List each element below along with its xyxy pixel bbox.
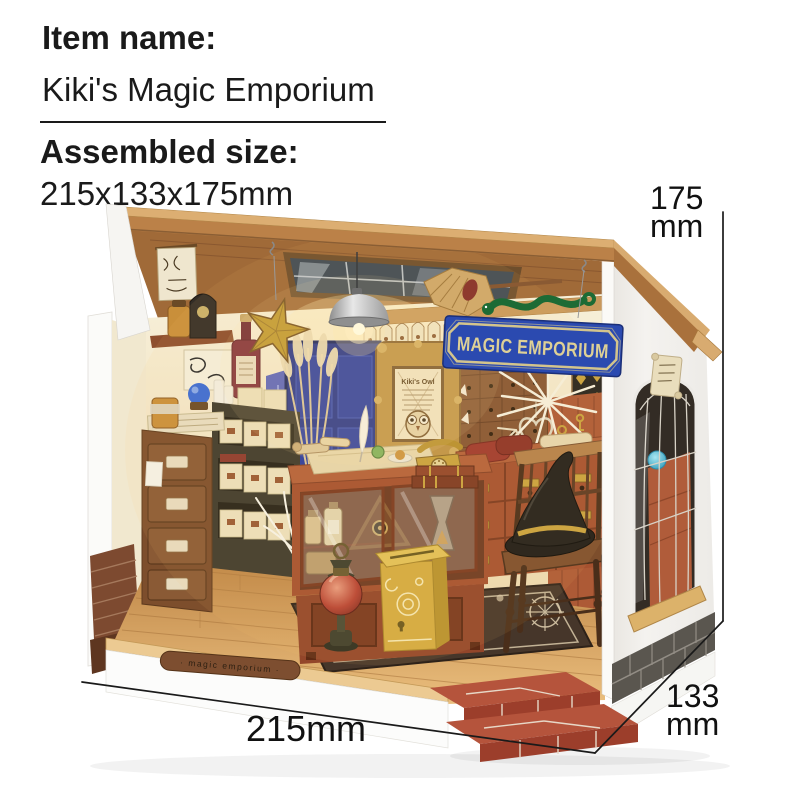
rune-banner [155,245,199,300]
product-spec-image: Item name: Kiki's Magic Emporium Assembl… [0,0,800,800]
height-dimension-label: 175 mm [650,184,703,240]
arched-window [628,378,706,632]
parchment-ornament [648,353,686,399]
depth-dimension-label: 133 mm [666,682,719,738]
crystal-orb [648,451,666,469]
magic-emporium-sign: MAGIC EMPORIUM [443,316,623,377]
width-dimension-label: 215mm [246,715,366,743]
